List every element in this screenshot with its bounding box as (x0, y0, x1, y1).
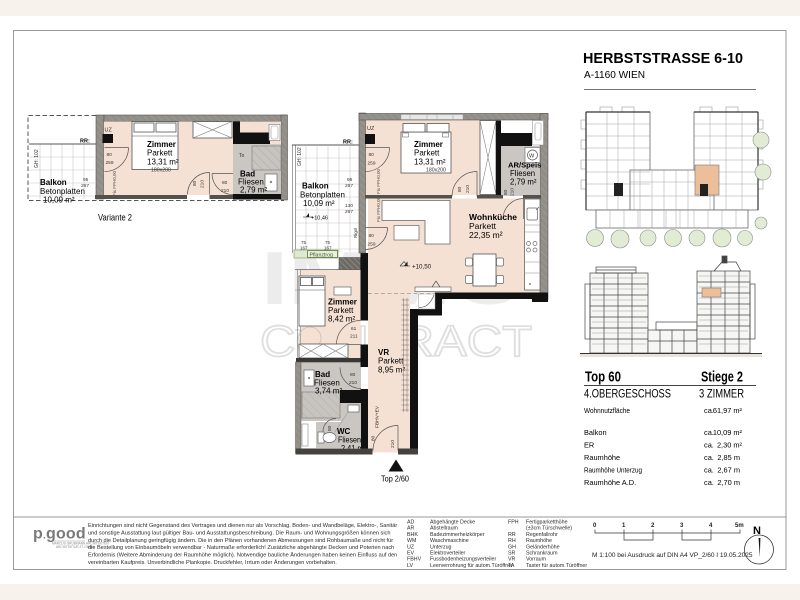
svg-text:VR: VR (508, 557, 516, 563)
svg-text:GH: 102: GH: 102 (34, 149, 40, 168)
svg-text:p.good: p.good (33, 526, 86, 543)
svg-text:61,97 m²: 61,97 m² (713, 406, 743, 415)
svg-text:Parkett: Parkett (414, 149, 440, 158)
svg-text:180x200: 180x200 (426, 168, 446, 174)
svg-text:2,79 m²: 2,79 m² (240, 186, 267, 195)
svg-text:210: 210 (221, 188, 229, 194)
svg-text:To: To (239, 153, 245, 159)
svg-text:211: 211 (350, 334, 358, 340)
svg-text:Fix FPH0,00: Fix FPH0,00 (376, 196, 381, 222)
svg-text:HERBSTSTRASSE 6-10: HERBSTSTRASSE 6-10 (583, 51, 743, 67)
svg-text:4.OBERGESCHOSS: 4.OBERGESCHOSS (584, 389, 671, 401)
svg-text:80: 80 (327, 425, 333, 431)
svg-text:M 1:100 bei Ausdruck auf DIN A: M 1:100 bei Ausdruck auf DIN A4 VP_2/60 … (592, 552, 753, 559)
svg-text:W: W (529, 154, 535, 160)
svg-text:80: 80 (192, 180, 198, 186)
svg-text:LV: LV (407, 563, 414, 569)
svg-text:Balkon: Balkon (302, 182, 329, 191)
svg-text:267: 267 (345, 209, 353, 215)
svg-text:+10,50: +10,50 (412, 264, 432, 271)
svg-text:80: 80 (222, 180, 228, 186)
svg-text:Top 2/60: Top 2/60 (381, 475, 409, 484)
svg-text:95: 95 (347, 177, 353, 183)
svg-text:FBHV+EV: FBHV+EV (375, 405, 381, 428)
svg-text:Stiege 2: Stiege 2 (701, 370, 743, 386)
svg-text:Rigol: Rigol (353, 228, 358, 238)
svg-text:Top 60: Top 60 (585, 370, 621, 386)
svg-text:FBHV: FBHV (407, 557, 422, 563)
svg-text:267: 267 (345, 183, 353, 189)
svg-text:Raumhöhe: Raumhöhe (584, 453, 620, 462)
svg-text:2: 2 (651, 523, 655, 529)
svg-text:80: 80 (503, 189, 509, 195)
svg-text:RR:: RR: (80, 139, 90, 145)
svg-text:AR: AR (407, 526, 415, 532)
svg-text:259: 259 (368, 161, 376, 167)
svg-text:Fertigparketthöhe: Fertigparketthöhe (526, 520, 568, 526)
svg-text:259: 259 (106, 160, 114, 166)
svg-text:13,31 m²: 13,31 m² (147, 158, 179, 167)
svg-text:und sonstige Ausstattung laut: und sonstige Ausstattung laut gültiger B… (88, 530, 390, 536)
svg-text:Fix FPH0,00: Fix FPH0,00 (112, 170, 117, 196)
svg-text:EV: EV (407, 551, 415, 557)
svg-text:10,09 m²: 10,09 m² (43, 196, 75, 205)
svg-text:Einrichtungen sind nicht Gegen: Einrichtungen sind nicht Gegenstand des … (88, 523, 397, 529)
svg-text:Badezimmerheizkörper: Badezimmerheizkörper (430, 532, 485, 538)
svg-text:Parkett: Parkett (147, 149, 173, 158)
svg-text:Raumhöhe Unterzug: Raumhöhe Unterzug (584, 466, 642, 475)
svg-text:Raumhöhe A.D.: Raumhöhe A.D. (584, 478, 636, 487)
svg-text:3 ZIMMER: 3 ZIMMER (699, 389, 744, 401)
svg-text:Unterzug: Unterzug (430, 544, 452, 550)
svg-text:Abgehängte Decke: Abgehängte Decke (430, 520, 475, 526)
svg-text:75: 75 (301, 240, 307, 245)
svg-text:2,85 m: 2,85 m (717, 453, 740, 462)
svg-text:5m: 5m (735, 523, 744, 529)
svg-text:180x200: 180x200 (151, 168, 171, 174)
svg-text:RR: RR (508, 532, 516, 538)
svg-text:Leerverrohrung für autom.Türöf: Leerverrohrung für autom.Türöffner (430, 563, 513, 569)
svg-text:8,95 m²: 8,95 m² (378, 366, 405, 375)
svg-text:0: 0 (593, 523, 597, 529)
svg-text:Elektroverteiler: Elektroverteiler (430, 551, 466, 557)
svg-text:ca.: ca. (704, 478, 714, 487)
svg-text:UZ: UZ (367, 126, 375, 132)
svg-text:Variante 2: Variante 2 (98, 213, 132, 224)
svg-text:95: 95 (83, 177, 89, 183)
svg-text:die Bestellung von Einbaumöbel: die Bestellung von Einbaumöbeln verwendb… (88, 545, 394, 551)
svg-text:Abstellraum: Abstellraum (430, 526, 459, 532)
svg-text:61: 61 (351, 326, 357, 332)
svg-text:267: 267 (81, 183, 89, 189)
svg-text:210: 210 (465, 185, 471, 193)
svg-text:GH: GH (508, 544, 516, 550)
svg-text:210: 210 (510, 188, 516, 196)
svg-text:3,74 m²: 3,74 m² (315, 387, 342, 396)
svg-text:UZ: UZ (407, 544, 415, 550)
svg-text:80: 80 (371, 435, 377, 441)
svg-text:80: 80 (350, 372, 356, 378)
svg-text:RH: RH (508, 538, 516, 544)
svg-text:Regenfallrohr: Regenfallrohr (526, 532, 558, 538)
svg-text:Erfordernis (Weitere Abminderu: Erfordernis (Weitere Abminderung der Rau… (88, 552, 397, 559)
svg-text:Schrankraum: Schrankraum (526, 551, 558, 557)
svg-text:Raumhöhe: Raumhöhe (526, 538, 552, 544)
svg-text:210: 210 (200, 180, 206, 188)
svg-text:TA: TA (508, 563, 515, 569)
svg-text:UZ: UZ (105, 128, 113, 134)
svg-text:75: 75 (325, 240, 331, 245)
svg-text:210: 210 (349, 380, 357, 386)
svg-text:2,70 m: 2,70 m (717, 478, 740, 487)
svg-text:+10,46: +10,46 (311, 216, 328, 222)
svg-text:A-1160 WIEN: A-1160 WIEN (584, 69, 645, 81)
svg-text:N: N (753, 525, 761, 537)
svg-text:80: 80 (369, 233, 375, 239)
svg-text:GH: 102: GH: 102 (297, 147, 303, 166)
svg-text:durch die Detailplanung gering: durch die Detailplanung geringfügig ände… (88, 538, 393, 544)
svg-text:210: 210 (390, 440, 396, 448)
svg-text:Pflanztrog: Pflanztrog (310, 253, 333, 259)
svg-text:Parkett: Parkett (378, 357, 404, 366)
svg-text:vereinbarten Kaufpreis. Unverb: vereinbarten Kaufpreis. Unverbindliche P… (88, 559, 337, 566)
svg-text:259: 259 (368, 242, 376, 248)
svg-text:10,09 m²: 10,09 m² (713, 428, 743, 437)
svg-text:10,09 m²: 10,09 m² (303, 199, 335, 208)
svg-text:13,31 m²: 13,31 m² (414, 158, 446, 167)
svg-text:4: 4 (709, 523, 713, 529)
svg-text:Taster für autom.Türöffner: Taster für autom.Türöffner (526, 563, 587, 569)
svg-text:RR:: RR: (343, 140, 353, 146)
svg-text:Balkon: Balkon (584, 428, 607, 437)
svg-text:ER: ER (584, 441, 594, 450)
svg-text:22,35 m²: 22,35 m² (469, 230, 503, 240)
svg-text:80: 80 (107, 152, 113, 158)
svg-text:Waschmaschine: Waschmaschine (430, 538, 469, 544)
svg-text:3: 3 (680, 523, 684, 529)
svg-text:ca.: ca. (704, 441, 714, 450)
svg-text:(±3cm Türschwelle): (±3cm Türschwelle) (526, 526, 572, 532)
svg-text:2,67 m: 2,67 m (717, 466, 740, 475)
svg-text:ca.: ca. (704, 453, 714, 462)
svg-text:SR: SR (508, 551, 516, 557)
svg-text:2,79 m²: 2,79 m² (510, 178, 537, 187)
svg-text:80: 80 (457, 186, 463, 192)
svg-text:BHK: BHK (407, 532, 418, 538)
svg-text:Vorraum: Vorraum (526, 557, 547, 563)
svg-text:Fix FPH0,00: Fix FPH0,00 (376, 168, 381, 194)
svg-text:Wohnnutzfläche: Wohnnutzfläche (584, 406, 630, 415)
svg-text:FPH: FPH (508, 520, 519, 526)
svg-text:WM: WM (407, 538, 416, 544)
svg-text:ca.: ca. (704, 466, 714, 475)
svg-text:AD: AD (407, 520, 415, 526)
svg-text:Geländerhöhe: Geländerhöhe (526, 544, 560, 550)
svg-text:80: 80 (369, 152, 375, 158)
svg-text:1: 1 (622, 523, 626, 529)
svg-text:Balkon: Balkon (40, 178, 67, 187)
svg-text:130: 130 (345, 203, 353, 209)
svg-text:Fussbodenheizungsverteiler: Fussbodenheizungsverteiler (430, 557, 496, 563)
svg-text:2,30 m²: 2,30 m² (717, 441, 743, 450)
